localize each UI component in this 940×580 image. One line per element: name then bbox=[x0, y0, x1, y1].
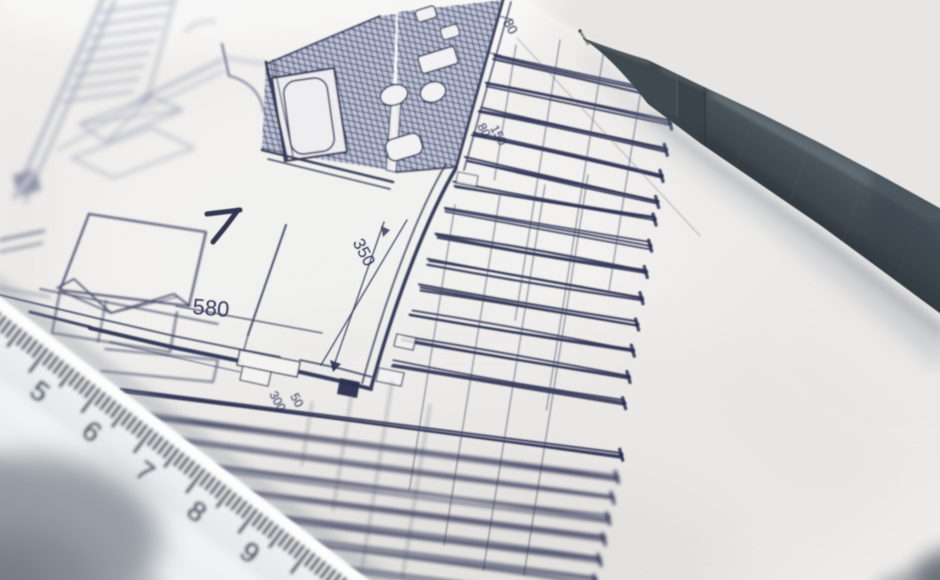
svg-text:580: 580 bbox=[192, 294, 231, 322]
